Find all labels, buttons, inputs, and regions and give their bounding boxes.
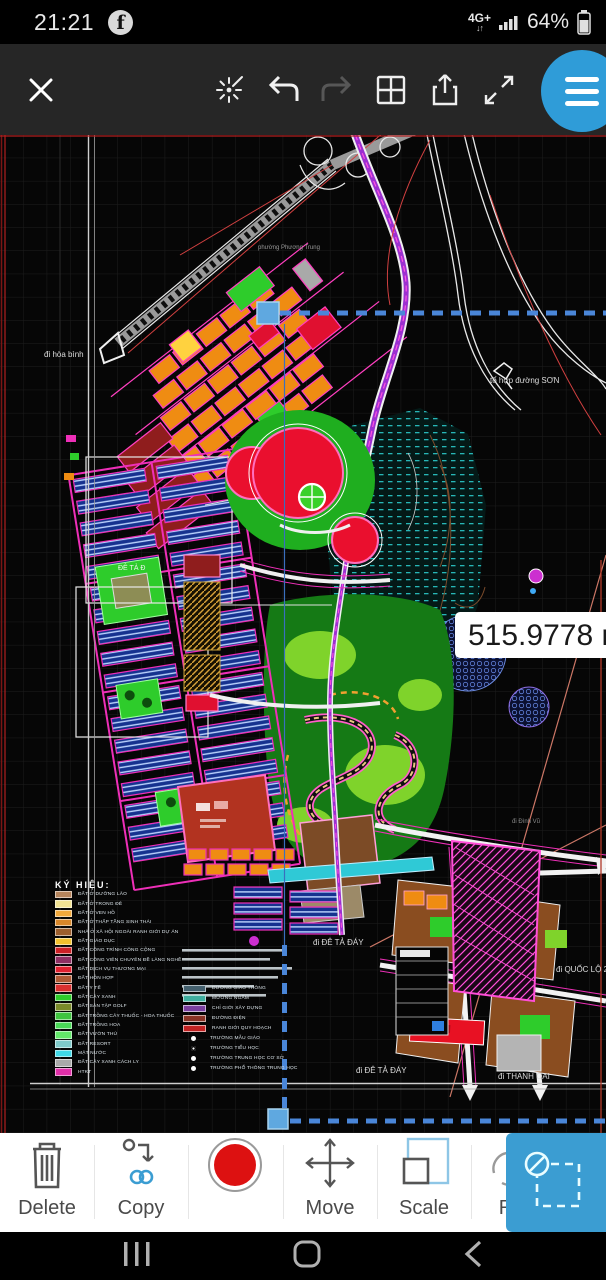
measurement-label: 515.9778 m	[455, 612, 606, 658]
legend-item: ĐẤT Ở VEN HỒ	[55, 909, 291, 918]
map-label: đi Đình Vũ	[512, 819, 540, 825]
legend-line-swatch	[183, 1015, 206, 1022]
android-nav-bar	[0, 1232, 606, 1280]
snap-icon	[211, 72, 247, 108]
legend-point-swatch	[191, 1056, 196, 1061]
legend-swatch	[55, 928, 72, 936]
redo-icon	[318, 73, 356, 107]
legend-item: TRƯỜNG MẪU GIÁO	[183, 1033, 298, 1043]
map-label: đi THANH OAI	[498, 1072, 550, 1081]
legend-item: TRƯỜNG TIỂU HỌC	[183, 1043, 298, 1053]
share-icon	[428, 72, 462, 108]
legend-title: KÝ HIỆU:	[55, 880, 291, 890]
legend-item: ĐẤT Ở DƯỠNG LÃO	[55, 890, 291, 899]
legend-item: ĐẤT GIÁO DỤC	[55, 937, 291, 946]
share-button[interactable]	[418, 55, 472, 125]
legend-swatch	[55, 1012, 72, 1020]
legend-line-swatch	[183, 1005, 206, 1012]
back-button[interactable]	[460, 1238, 486, 1275]
legend-swatch	[55, 1022, 72, 1030]
close-icon	[26, 75, 56, 105]
legend-item: RANH GIỚI QUY HOẠCH	[183, 1023, 298, 1033]
status-bar: 21:21 f 4G+ ↓↑ 64%	[0, 0, 606, 44]
selection-grip-bottom[interactable]	[268, 1109, 288, 1129]
legend-item: ĐƯỜNG GIAO THÔNG	[183, 983, 298, 993]
legend-item: ĐƯỜNG ĐIỆN	[183, 1013, 298, 1023]
battery-icon	[576, 9, 592, 35]
home-icon	[291, 1238, 323, 1270]
undo-button[interactable]	[256, 55, 310, 125]
legend-swatch	[55, 891, 72, 899]
record-icon	[205, 1133, 265, 1195]
map-label: đi ĐÊ TẢ ĐÁY	[356, 1066, 407, 1075]
legend-swatch	[55, 938, 72, 946]
map-label: đi ĐÊ TẢ ĐÁY	[313, 938, 364, 947]
move-button[interactable]: Move	[283, 1133, 377, 1232]
legend-swatch	[55, 975, 72, 983]
map-label: đi hòa bình	[44, 350, 84, 359]
back-icon	[460, 1238, 486, 1270]
deselect-icon	[523, 1150, 589, 1216]
legend-item: TRƯỜNG PHỔ THÔNG TRUNG HỌC	[183, 1063, 298, 1073]
scale-icon	[396, 1133, 452, 1195]
legend-point-swatch	[191, 1046, 196, 1051]
record-color-button[interactable]	[188, 1133, 282, 1232]
copy-button[interactable]: Copy	[94, 1133, 188, 1232]
clock: 21:21	[34, 9, 94, 36]
legend-item: ĐẤT Ở THẤP TẦNG SINH THÁI	[55, 918, 291, 927]
legend-swatch	[55, 1031, 72, 1039]
legend-item: ĐẤT CÔNG TRÌNH CÔNG CỘNG	[55, 946, 291, 955]
legend-item: NHÀ Ở XÃ HỘI NGOÀI RANH GIỚI DỰ ÁN	[55, 927, 291, 936]
trash-icon	[21, 1133, 73, 1195]
fullscreen-icon	[481, 72, 517, 108]
legend-swatch	[55, 1068, 72, 1076]
recents-button[interactable]	[120, 1239, 154, 1274]
map-label: ĐÊ TẢ Đ	[118, 565, 146, 572]
map-legend: KÝ HIỆU: ĐẤT Ở DƯỠNG LÃOĐẤT Ở TRONG ĐÊĐẤ…	[55, 880, 291, 1092]
legend-swatch	[55, 1040, 72, 1048]
legend-swatch	[55, 900, 72, 908]
split-view-button[interactable]	[364, 55, 418, 125]
legend-swatch	[55, 966, 72, 974]
legend-swatch	[55, 1059, 72, 1067]
close-button[interactable]	[14, 55, 68, 125]
legend-swatch	[55, 984, 72, 992]
legend-line-swatch	[183, 1025, 206, 1032]
split-view-icon	[374, 73, 408, 107]
cad-viewport[interactable]: đi hòa bìnhphường Phương Trungtổ hợp đườ…	[0, 135, 606, 1133]
map-label: phường Phương Trung	[258, 245, 320, 251]
map-label: đi QUỐC LỘ 2	[556, 965, 606, 974]
legend-swatch	[55, 994, 72, 1002]
move-icon	[302, 1133, 358, 1195]
legend-line-swatch	[183, 995, 206, 1002]
legend-item: TRƯỜNG TRUNG HỌC CƠ SỞ	[183, 1053, 298, 1063]
delete-button[interactable]: Delete	[0, 1133, 94, 1232]
legend-swatch	[55, 947, 72, 955]
legend-swatch	[55, 1003, 72, 1011]
home-button[interactable]	[291, 1238, 323, 1275]
copy-icon	[115, 1133, 167, 1195]
network-type-indicator: 4G+ ↓↑	[468, 12, 491, 33]
recents-icon	[120, 1239, 154, 1269]
legend-swatch	[55, 919, 72, 927]
fullscreen-button[interactable]	[472, 55, 526, 125]
legend-swatch	[55, 956, 72, 964]
battery-percentage: 64%	[527, 10, 569, 34]
menu-icon	[565, 77, 599, 82]
legend-item: ĐẤT CÔNG VIÊN CHUYÊN ĐỀ LÀNG NGHỀ	[55, 955, 291, 964]
edit-toolbar: Delete Copy Move	[0, 1133, 606, 1232]
deselect-panel[interactable]	[506, 1133, 606, 1232]
map-label: tổ hợp đường SƠN	[490, 376, 559, 385]
legend-item: CHỈ GIỚI XÂY DỰNG	[183, 1003, 298, 1013]
snap-button[interactable]	[202, 55, 256, 125]
legend-point-swatch	[191, 1066, 196, 1071]
legend-swatch	[55, 1050, 72, 1058]
scale-button[interactable]: Scale	[377, 1133, 471, 1232]
legend-swatch	[55, 910, 72, 918]
signal-strength-icon	[498, 12, 520, 32]
legend-point-swatch	[191, 1036, 196, 1041]
undo-icon	[264, 73, 302, 107]
app-toolbar	[0, 44, 606, 135]
selection-grip-top[interactable]	[257, 302, 279, 324]
legend-item: MƯƠNG NGẦM	[183, 993, 298, 1003]
redo-button[interactable]	[310, 55, 364, 125]
legend-item: ĐẤT Ở TRONG ĐÊ	[55, 899, 291, 908]
legend-item: ĐẤT DỊCH VỤ THƯƠNG MẠI	[55, 965, 291, 974]
facebook-notification-icon: f	[108, 10, 133, 35]
legend-line-swatch	[183, 985, 206, 992]
